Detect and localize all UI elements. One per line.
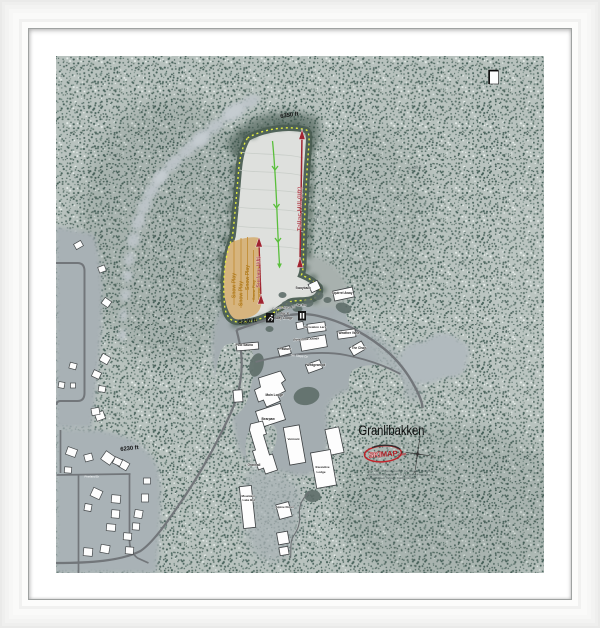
svg-text:Snow Play: Snow Play <box>231 273 237 298</box>
svg-text:Pasture: Pasture <box>279 347 291 351</box>
svg-text:Tallac Hill (lift): Tallac Hill (lift) <box>296 187 303 232</box>
svg-text:Pool Sauna: Pool Sauna <box>235 343 253 347</box>
svg-text:Lodge: Lodge <box>316 470 325 474</box>
svg-text:The Chair: The Chair <box>351 346 366 350</box>
svg-text:Granhall: Granhall <box>247 463 260 467</box>
svg-text:Pineland Dr: Pineland Dr <box>84 475 99 479</box>
svg-text:Recreation Lars: Recreation Lars <box>303 325 326 329</box>
svg-text:Swayback: Swayback <box>295 286 311 290</box>
svg-text:Weather Vane: Weather Vane <box>338 331 359 335</box>
svg-text:Lake Bld: Lake Bld <box>242 498 255 502</box>
svg-text:Bearpaw: Bearpaw <box>261 417 275 421</box>
svg-text:Vermont: Vermont <box>287 437 299 441</box>
svg-text:Executive: Executive <box>315 465 329 469</box>
svg-text:Alpine Room: Alpine Room <box>275 505 294 509</box>
svg-text:Wedgewood: Wedgewood <box>306 363 325 367</box>
svg-text:Snow Play: Snow Play <box>238 281 244 306</box>
svg-text:Tac Rm: Tac Rm <box>296 303 306 307</box>
svg-text:Squirrel Away: Squirrel Away <box>331 291 352 295</box>
svg-text:Granlibakken Tahoe - Californi: Granlibakken Tahoe - California USA <box>367 476 416 480</box>
svg-text:Day Lodge: Day Lodge <box>276 316 293 320</box>
svg-text:Lodge &: Lodge & <box>276 312 290 316</box>
svg-text:Surface (lift): Surface (lift) <box>256 256 262 288</box>
svg-text:Main Lodge: Main Lodge <box>265 393 283 397</box>
